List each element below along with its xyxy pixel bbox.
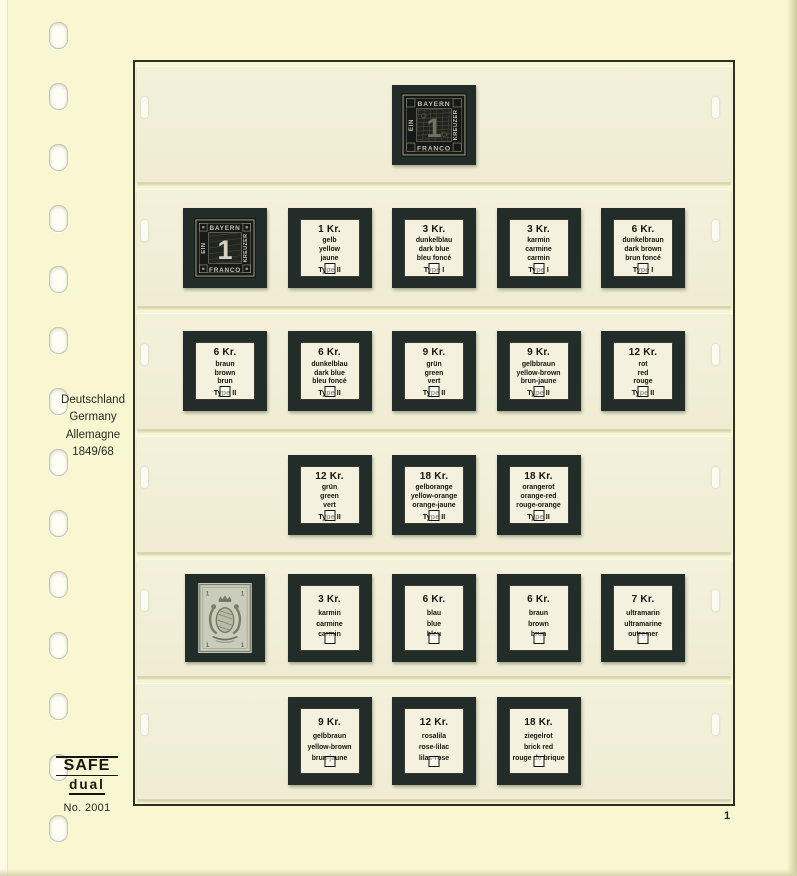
color-name-lines: gelbbraunyellow-brownbrun-jaune	[510, 361, 568, 387]
mount-slot: 1 1 1 1	[183, 574, 267, 662]
mount-slot: BAYERN FRANCO EIN KREUZER 1	[392, 85, 476, 165]
strip-cells: 12 Kr.grüngreenvertType II18 Kr.gelboran…	[137, 437, 731, 552]
color-name-lines: gelborangeyellow-orangeorange-jaune	[405, 484, 463, 510]
mount-slot: 18 Kr.ziegelrotbrick redrouge de brique	[497, 697, 581, 785]
denomination-label: 6 Kr.	[614, 224, 672, 235]
color-name-line: blue	[405, 620, 463, 631]
color-name-line: gelb	[301, 237, 359, 246]
collect-checkbox	[429, 756, 440, 767]
color-name-line: gelbbraun	[510, 361, 568, 370]
stamp-label-card: 9 Kr.gelbbraunyellow-brownbrun-jauneType…	[509, 342, 569, 400]
country-title-line: Deutschland	[42, 392, 144, 409]
page-left-edge	[0, 0, 8, 876]
color-name-line: yellow-orange	[405, 493, 463, 502]
mount-slot: 12 Kr.grüngreenvertType II	[288, 455, 372, 535]
denomination-label: 18 Kr.	[510, 717, 568, 728]
punch-hole	[49, 83, 68, 110]
bavaria-1-kreuzer-black-stamp-ornate: BAYERN FRANCO EIN KREUZER 1	[401, 93, 467, 157]
album-page: { "sidebar": { "country_lines": ["Deutsc…	[0, 0, 797, 876]
bavaria-1-kreuzer-black-stamp: BAYERN FRANCO EIN KREUZER 1	[194, 218, 256, 278]
label-mount: 12 Kr.rotredrougeType II	[601, 331, 685, 411]
color-name-line: dark brown	[614, 246, 672, 255]
strip-cells: 9 Kr.gelbbraunyellow-brownbrun-jaune12 K…	[137, 684, 731, 799]
punch-hole	[49, 205, 68, 232]
mount-slot: BAYERN FRANCO EIN KREUZER 1	[183, 208, 267, 288]
color-name-line: dark blue	[301, 370, 359, 379]
color-name-line: brick red	[510, 743, 568, 754]
album-page-frame: BAYERN FRANCO EIN KREUZER 1 BAYERN FRANC…	[133, 60, 735, 806]
mount-slot: 18 Kr.gelborangeyellow-orangeorange-jaun…	[392, 455, 476, 535]
denomination-label: 12 Kr.	[614, 347, 672, 358]
collect-checkbox	[638, 386, 649, 397]
stamp-label-card: 6 Kr.braunbrownbrunType II	[195, 342, 255, 400]
collect-checkbox	[638, 633, 649, 644]
mount-slot: 3 Kr.karmincarminecarmin	[288, 574, 372, 662]
mount-slot: 3 Kr.karmincarminecarminType I	[497, 208, 581, 288]
color-name-line: orange-red	[510, 493, 568, 502]
color-name-line: grün	[405, 361, 463, 370]
stamp-value: 1	[217, 234, 232, 265]
stamp-label-card: 18 Kr.orangerotorange-redrouge-orangeTyp…	[509, 466, 569, 524]
stamp-label-card: 18 Kr.ziegelrotbrick redrouge de brique	[509, 708, 569, 774]
denomination-label: 9 Kr.	[510, 347, 568, 358]
label-mount: 9 Kr.gelbbraunyellow-brownbrun-jauneType…	[497, 331, 581, 411]
mount-slot: 3 Kr.dunkelblaudark bluebleu foncéType I	[392, 208, 476, 288]
color-name-lines: grüngreenvert	[301, 484, 359, 510]
stamp-bottom-label: FRANCO	[417, 145, 451, 152]
collect-checkbox	[324, 263, 335, 274]
brand-logo: SAFE dual No. 2001	[56, 756, 118, 814]
collect-checkbox	[533, 756, 544, 767]
stamp-left-label: EIN	[201, 242, 207, 253]
mount-slot: 7 Kr.ultramarinultramarineoutremer	[601, 574, 685, 662]
stamp-right-label: KREUZER	[453, 109, 459, 140]
color-name-line: ziegelrot	[510, 732, 568, 743]
color-name-line: rose-lilac	[405, 743, 463, 754]
collect-checkbox	[533, 263, 544, 274]
color-name-lines: rotredrouge	[614, 361, 672, 387]
label-mount: 1 Kr.gelbyellowjauneType II	[288, 208, 372, 288]
color-name-line: brown	[510, 620, 568, 631]
mount-slot: 6 Kr.blaubluebleu	[392, 574, 476, 662]
mount-strip: 9 Kr.gelbbraunyellow-brownbrun-jaune12 K…	[137, 683, 731, 800]
arms-corner-value: 1	[241, 642, 245, 649]
collect-checkbox	[533, 633, 544, 644]
period-label: 1849/68	[42, 446, 144, 458]
stamp-label-card: 12 Kr.rotredrougeType II	[613, 342, 673, 400]
mount-slot: 9 Kr.gelbbraunyellow-brownbrun-jaune	[288, 697, 372, 785]
denomination-label: 12 Kr.	[405, 717, 463, 728]
color-name-line: yellow-brown	[510, 370, 568, 379]
country-title-line: Germany	[42, 409, 144, 426]
mount-strip: 1 1 1 1 3 Kr.karmincarminecarmin6 Kr.bla…	[137, 559, 731, 676]
mount-strip: 6 Kr.braunbrownbrunType II6 Kr.dunkelbla…	[137, 313, 731, 430]
mount-strip: BAYERN FRANCO EIN KREUZER 1 1 Kr.gelbyel…	[137, 189, 731, 306]
color-name-line: blau	[405, 609, 463, 620]
denomination-label: 3 Kr.	[405, 224, 463, 235]
stamp-top-label: BAYERN	[210, 225, 241, 232]
label-mount: 9 Kr.gelbbraunyellow-brownbrun-jaune	[288, 697, 372, 785]
collect-checkbox	[429, 510, 440, 521]
country-title-line: Allemagne	[42, 427, 144, 444]
arms-corner-value: 1	[206, 642, 210, 649]
collect-checkbox	[533, 510, 544, 521]
country-title: DeutschlandGermanyAllemagne	[42, 392, 144, 444]
color-name-lines: grüngreenvert	[405, 361, 463, 387]
punch-hole	[49, 632, 68, 659]
color-name-lines: orangerotorange-redrouge-orange	[510, 484, 568, 510]
label-mount: 6 Kr.dunkelblaudark bluebleu foncéType I…	[288, 331, 372, 411]
label-mount: 6 Kr.dunkelbraundark brownbrun foncéType…	[601, 208, 685, 288]
color-name-line: dunkelbraun	[614, 237, 672, 246]
mount-strip: BAYERN FRANCO EIN KREUZER 1	[137, 66, 731, 183]
mount-slot: 6 Kr.dunkelbraundark brownbrun foncéType…	[601, 208, 685, 288]
color-name-lines: dunkelbraundark brownbrun foncé	[614, 237, 672, 263]
label-mount: 3 Kr.karmincarminecarmin	[288, 574, 372, 662]
brand-dual-wordmark: dual	[69, 778, 105, 795]
color-name-line: carmine	[510, 246, 568, 255]
collect-checkbox	[429, 633, 440, 644]
mount-slot: 9 Kr.grüngreenvertType II	[392, 331, 476, 411]
color-name-lines: karmincarminecarmin	[510, 237, 568, 263]
mount-slot: 6 Kr.braunbrownbrun	[497, 574, 581, 662]
denomination-label: 18 Kr.	[405, 471, 463, 482]
stamp-label-card: 3 Kr.karmincarminecarminType I	[509, 219, 569, 277]
arms-corner-value: 1	[206, 590, 210, 597]
collect-checkbox	[429, 263, 440, 274]
strips: BAYERN FRANCO EIN KREUZER 1 BAYERN FRANC…	[135, 62, 733, 804]
stamp-mount: BAYERN FRANCO EIN KREUZER 1	[392, 85, 476, 165]
punch-hole	[49, 22, 68, 49]
strip-cells: 1 1 1 1 3 Kr.karmincarminecarmin6 Kr.bla…	[137, 560, 731, 675]
label-mount: 9 Kr.grüngreenvertType II	[392, 331, 476, 411]
mount-strip: 12 Kr.grüngreenvertType II18 Kr.gelboran…	[137, 436, 731, 553]
denomination-label: 9 Kr.	[301, 717, 359, 728]
color-name-line: brown	[196, 370, 254, 379]
color-name-line: dunkelblau	[405, 237, 463, 246]
color-name-line: ultramarine	[614, 620, 672, 631]
page-bottom-edge-shadow	[0, 869, 797, 876]
color-name-line: braun	[196, 361, 254, 370]
punch-hole	[49, 571, 68, 598]
denomination-label: 6 Kr.	[196, 347, 254, 358]
punch-hole	[49, 815, 68, 842]
collect-checkbox	[324, 386, 335, 397]
denomination-label: 3 Kr.	[510, 224, 568, 235]
collect-checkbox	[324, 756, 335, 767]
mount-slot: 12 Kr.rotredrougeType II	[601, 331, 685, 411]
stamp-label-card: 6 Kr.blaubluebleu	[404, 585, 464, 651]
stamp-label-card: 12 Kr.rosalilarose-lilaclilas-rose	[404, 708, 464, 774]
mount-slot: 18 Kr.orangerotorange-redrouge-orangeTyp…	[497, 455, 581, 535]
color-name-line: karmin	[510, 237, 568, 246]
label-mount: 18 Kr.gelborangeyellow-orangeorange-jaun…	[392, 455, 476, 535]
mount-slot: 6 Kr.dunkelblaudark bluebleu foncéType I…	[288, 331, 372, 411]
stamp-label-card: 6 Kr.braunbrownbrun	[509, 585, 569, 651]
page-number: 1	[724, 810, 730, 822]
stamp-value: 1	[427, 113, 442, 143]
stamp-label-card: 3 Kr.karmincarminecarmin	[300, 585, 360, 651]
punch-hole	[49, 144, 68, 171]
color-name-lines: braunbrownbrun	[196, 361, 254, 387]
stamp-label-card: 18 Kr.gelborangeyellow-orangeorange-jaun…	[404, 466, 464, 524]
bavaria-coat-of-arms-stamp: 1 1 1 1	[198, 583, 252, 653]
label-mount: 12 Kr.rosalilarose-lilaclilas-rose	[392, 697, 476, 785]
punch-hole	[49, 266, 68, 293]
color-name-lines: dunkelblaudark bluebleu foncé	[301, 361, 359, 387]
label-mount: 3 Kr.dunkelblaudark bluebleu foncéType I	[392, 208, 476, 288]
color-name-line: gelborange	[405, 484, 463, 493]
stamp-label-card: 6 Kr.dunkelbraundark brownbrun foncéType…	[613, 219, 673, 277]
color-name-line: yellow	[301, 246, 359, 255]
denomination-label: 3 Kr.	[301, 594, 359, 605]
label-mount: 6 Kr.blaubluebleu	[392, 574, 476, 662]
color-name-line: orangerot	[510, 484, 568, 493]
stamp-left-label: EIN	[408, 119, 415, 131]
punch-hole	[49, 327, 68, 354]
denomination-label: 1 Kr.	[301, 224, 359, 235]
color-name-line: red	[614, 370, 672, 379]
denomination-label: 9 Kr.	[405, 347, 463, 358]
stamp-top-label: BAYERN	[417, 101, 450, 108]
collect-checkbox	[638, 263, 649, 274]
label-mount: 6 Kr.braunbrownbrun	[497, 574, 581, 662]
label-mount: 18 Kr.orangerotorange-redrouge-orangeTyp…	[497, 455, 581, 535]
brand-safe-wordmark: SAFE	[56, 756, 118, 776]
label-mount: 3 Kr.karmincarminecarminType I	[497, 208, 581, 288]
label-mount: 18 Kr.ziegelrotbrick redrouge de brique	[497, 697, 581, 785]
color-name-lines: dunkelblaudark bluebleu foncé	[405, 237, 463, 263]
denomination-label: 6 Kr.	[510, 594, 568, 605]
stamp-label-card: 1 Kr.gelbyellowjauneType II	[300, 219, 360, 277]
denomination-label: 18 Kr.	[510, 471, 568, 482]
color-name-line: carmine	[301, 620, 359, 631]
color-name-line: dark blue	[405, 246, 463, 255]
stamp-label-card: 6 Kr.dunkelblaudark bluebleu foncéType I…	[300, 342, 360, 400]
denomination-label: 6 Kr.	[405, 594, 463, 605]
denomination-label: 6 Kr.	[301, 347, 359, 358]
color-name-lines: gelbyellowjaune	[301, 237, 359, 263]
color-name-line: gelbbraun	[301, 732, 359, 743]
color-name-line: rosalila	[405, 732, 463, 743]
brand-product-number: No. 2001	[56, 802, 118, 814]
strip-cells: BAYERN FRANCO EIN KREUZER 1 1 Kr.gelbyel…	[137, 190, 731, 305]
stamp-label-card: 7 Kr.ultramarinultramarineoutremer	[613, 585, 673, 651]
label-mount: 6 Kr.braunbrownbrunType II	[183, 331, 267, 411]
collect-checkbox	[429, 386, 440, 397]
stamp-mount: 1 1 1 1	[185, 574, 265, 662]
collect-checkbox	[220, 386, 231, 397]
color-name-line: ultramarin	[614, 609, 672, 620]
strip-cells: BAYERN FRANCO EIN KREUZER 1	[137, 67, 731, 182]
stamp-label-card: 9 Kr.grüngreenvertType II	[404, 342, 464, 400]
label-mount: 7 Kr.ultramarinultramarineoutremer	[601, 574, 685, 662]
color-name-line: karmin	[301, 609, 359, 620]
color-name-line: grün	[301, 484, 359, 493]
mount-slot: 1 Kr.gelbyellowjauneType II	[288, 208, 372, 288]
mount-slot: 6 Kr.braunbrownbrunType II	[183, 331, 267, 411]
color-name-line: braun	[510, 609, 568, 620]
mount-slot: 9 Kr.gelbbraunyellow-brownbrun-jauneType…	[497, 331, 581, 411]
punch-hole	[49, 693, 68, 720]
page-right-edge-shadow	[787, 0, 797, 876]
stamp-label-card: 3 Kr.dunkelblaudark bluebleu foncéType I	[404, 219, 464, 277]
collect-checkbox	[533, 386, 544, 397]
color-name-line: green	[405, 370, 463, 379]
stamp-mount: BAYERN FRANCO EIN KREUZER 1	[183, 208, 267, 288]
collect-checkbox	[324, 510, 335, 521]
collect-checkbox	[324, 633, 335, 644]
arms-corner-value: 1	[241, 590, 245, 597]
stamp-label-card: 12 Kr.grüngreenvertType II	[300, 466, 360, 524]
color-name-line: dunkelblau	[301, 361, 359, 370]
label-mount: 12 Kr.grüngreenvertType II	[288, 455, 372, 535]
color-name-line: green	[301, 493, 359, 502]
mount-slot: 12 Kr.rosalilarose-lilaclilas-rose	[392, 697, 476, 785]
color-name-line: yellow-brown	[301, 743, 359, 754]
stamp-right-label: KREUZER	[243, 234, 249, 263]
denomination-label: 7 Kr.	[614, 594, 672, 605]
stamp-bottom-label: FRANCO	[209, 267, 241, 274]
denomination-label: 12 Kr.	[301, 471, 359, 482]
punch-hole	[49, 510, 68, 537]
stamp-label-card: 9 Kr.gelbbraunyellow-brownbrun-jaune	[300, 708, 360, 774]
strip-cells: 6 Kr.braunbrownbrunType II6 Kr.dunkelbla…	[137, 314, 731, 429]
color-name-line: rot	[614, 361, 672, 370]
